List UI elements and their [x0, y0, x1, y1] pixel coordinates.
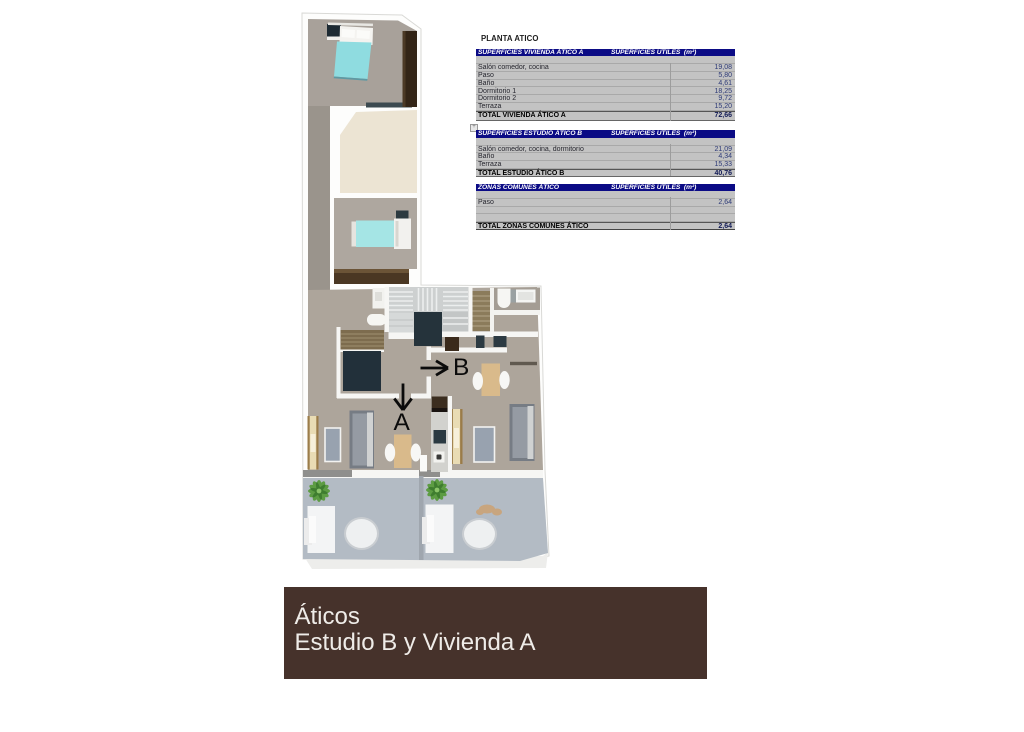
svg-text:B: B [453, 354, 469, 381]
svg-text:A: A [394, 409, 411, 436]
